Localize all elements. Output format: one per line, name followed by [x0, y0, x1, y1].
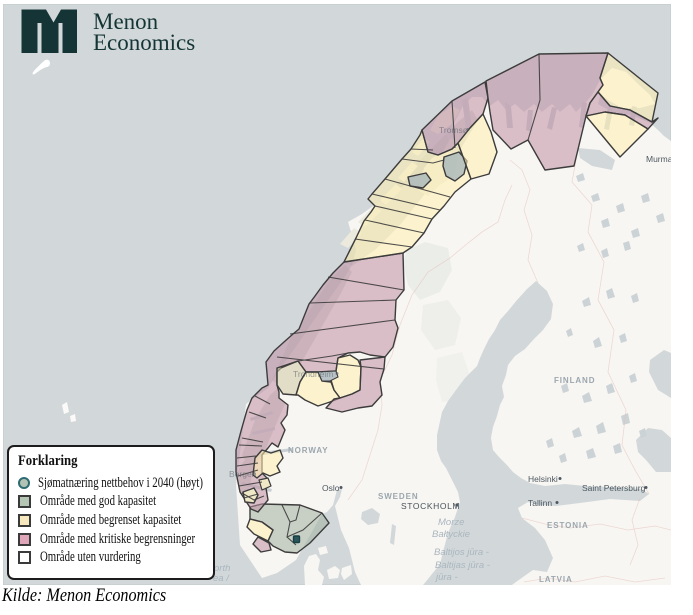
svg-text:Saint Petersburg: Saint Petersburg: [582, 483, 646, 493]
svg-text:Tromsø: Tromsø: [439, 125, 468, 135]
svg-text:FINLAND: FINLAND: [554, 376, 595, 385]
svg-text:ESTONIA: ESTONIA: [547, 521, 589, 530]
svg-text:Baltijas jūra -: Baltijas jūra -: [435, 560, 490, 571]
svg-text:Bałtyckie: Bałtyckie: [432, 529, 470, 540]
svg-text:LATVIA: LATVIA: [539, 575, 573, 584]
svg-text:Murmansk: Murmansk: [646, 154, 671, 164]
svg-text:Morze: Morze: [438, 517, 464, 528]
svg-text:Oslo: Oslo: [322, 483, 340, 493]
svg-text:Economics: Economics: [93, 30, 195, 55]
svg-text:NORWAY: NORWAY: [288, 446, 329, 455]
svg-text:STOCKHOLM: STOCKHOLM: [401, 501, 460, 511]
svg-text:Tallinn: Tallinn: [528, 498, 552, 508]
svg-text:Trondheim: Trondheim: [293, 369, 333, 379]
svg-text:Baltijos jūra -: Baltijos jūra -: [434, 547, 489, 558]
svg-text:Bergen: Bergen: [229, 469, 257, 479]
svg-text:Helsinki: Helsinki: [528, 474, 558, 484]
svg-text:SWEDEN: SWEDEN: [378, 492, 419, 501]
svg-text:ea /: ea /: [213, 573, 230, 584]
svg-text:jūra -: jūra -: [434, 572, 458, 583]
